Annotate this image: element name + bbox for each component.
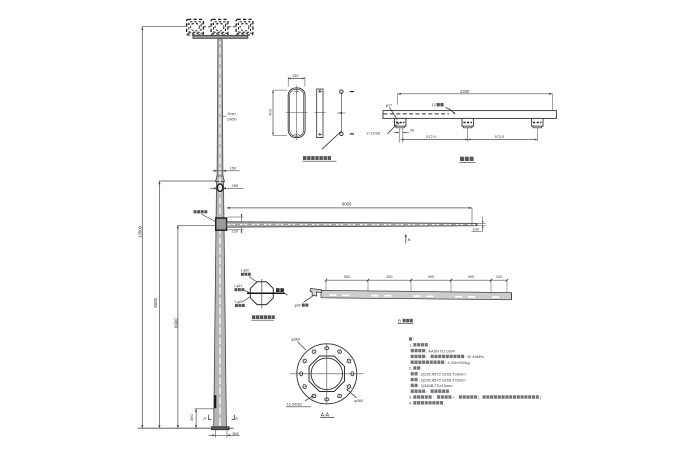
svg-text:1.: 1. xyxy=(409,343,412,348)
svg-text:220: 220 xyxy=(232,229,239,234)
svg-text:450: 450 xyxy=(189,413,194,420)
svg-text:: AASHTO 1994: : AASHTO 1994 xyxy=(426,348,455,353)
svg-text:8000: 8000 xyxy=(342,202,352,207)
svg-text::: : xyxy=(413,337,414,342)
svg-text:: 4.20m²/20kg: : 4.20m²/20kg xyxy=(445,360,469,365)
svg-text:200: 200 xyxy=(496,275,502,279)
svg-text:60: 60 xyxy=(410,129,414,133)
svg-text:8000: 8000 xyxy=(153,297,158,307)
svg-text:500: 500 xyxy=(387,275,393,279)
svg-text:500: 500 xyxy=(468,275,474,279)
svg-text:2.: 2. xyxy=(409,366,412,371)
svg-text:572.0: 572.0 xyxy=(426,135,436,139)
svg-text:2200: 2200 xyxy=(460,89,470,94)
svg-text:.: . xyxy=(444,401,445,406)
svg-text::: : xyxy=(433,395,434,400)
svg-text::: : xyxy=(429,343,430,348)
svg-text:130: 130 xyxy=(292,73,299,78)
svg-text:2-13/26: 2-13/26 xyxy=(367,131,381,136)
svg-text:3.: 3. xyxy=(409,395,412,400)
svg-text:A: A xyxy=(203,416,206,421)
svg-text:: Q345B,T0≥16mm: : Q345B,T0≥16mm xyxy=(419,383,453,388)
svg-text:: Q235 A572 Gr65,T≥6mm: : Q235 A572 Gr65,T≥6mm xyxy=(419,372,467,377)
svg-text:: W 45kPa: : W 45kPa xyxy=(465,354,484,359)
svg-text:500: 500 xyxy=(428,275,434,279)
svg-text:4.: 4. xyxy=(409,401,412,406)
svg-text:φ17: φ17 xyxy=(386,104,392,108)
svg-text:1-φ20: 1-φ20 xyxy=(241,269,250,273)
svg-text:100: 100 xyxy=(473,228,479,232)
svg-text:A: A xyxy=(235,416,238,421)
svg-text:B: B xyxy=(398,318,401,323)
svg-text::: : xyxy=(426,389,427,394)
svg-text:280: 280 xyxy=(232,183,239,188)
svg-text:GR50: GR50 xyxy=(227,118,238,122)
svg-text:φ30: φ30 xyxy=(295,304,301,308)
svg-text::: : xyxy=(421,366,422,371)
svg-text::: : xyxy=(426,354,427,359)
svg-text:3mm: 3mm xyxy=(227,112,235,116)
svg-text:1-φ12: 1-φ12 xyxy=(234,284,243,288)
svg-text:500: 500 xyxy=(344,275,350,279)
svg-text:350: 350 xyxy=(232,431,239,436)
svg-text:572.0: 572.0 xyxy=(495,135,505,139)
svg-text:B: B xyxy=(408,237,411,242)
svg-text:12-34x53: 12-34x53 xyxy=(287,403,302,407)
svg-text:150: 150 xyxy=(230,166,237,171)
svg-text:φ460: φ460 xyxy=(354,399,363,403)
svg-text:φ560: φ560 xyxy=(291,338,300,342)
svg-text:12: 12 xyxy=(432,103,436,107)
svg-text:6600: 6600 xyxy=(173,318,178,328)
svg-text:13500: 13500 xyxy=(138,225,143,238)
svg-text:1-φ20: 1-φ20 xyxy=(235,300,244,304)
svg-text:: Q235 A572 Gr65,T≥5mm: : Q235 A572 Gr65,T≥5mm xyxy=(419,377,467,382)
svg-text:400: 400 xyxy=(268,108,273,115)
